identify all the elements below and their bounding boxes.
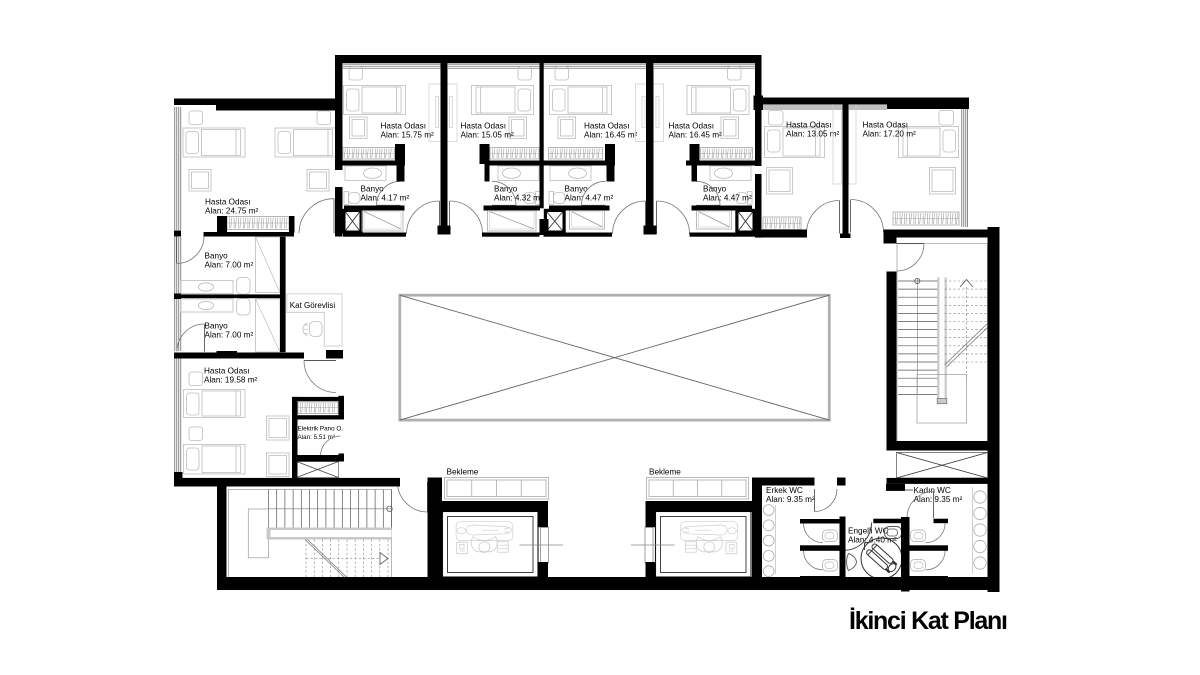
svg-text:Banyo: Banyo xyxy=(205,322,229,331)
svg-text:Alan: 15.05 m²: Alan: 15.05 m² xyxy=(461,131,515,140)
svg-text:Alan: 5.51 m²: Alan: 5.51 m² xyxy=(298,434,335,441)
svg-text:Alan: 4.47 m²: Alan: 4.47 m² xyxy=(703,194,752,203)
svg-text:Alan: 4.32 m²: Alan: 4.32 m² xyxy=(494,194,543,203)
svg-text:Hasta Odası: Hasta Odası xyxy=(381,122,427,131)
svg-text:Banyo: Banyo xyxy=(565,185,589,194)
svg-text:Hasta Odası: Hasta Odası xyxy=(584,122,630,131)
svg-text:Alan: 4.47 m²: Alan: 4.47 m² xyxy=(565,194,614,203)
svg-text:Banyo: Banyo xyxy=(205,252,229,261)
svg-text:Hasta Odası: Hasta Odası xyxy=(863,121,909,130)
svg-text:Bekleme: Bekleme xyxy=(649,468,681,477)
svg-text:Alan: 24.75 m²: Alan: 24.75 m² xyxy=(205,207,259,216)
svg-text:Alan: 4.17 m²: Alan: 4.17 m² xyxy=(361,194,410,203)
svg-text:Banyo: Banyo xyxy=(703,185,727,194)
svg-text:Hasta Odası: Hasta Odası xyxy=(786,121,832,130)
svg-text:Alan: 16.45 m²: Alan: 16.45 m² xyxy=(584,131,638,140)
svg-text:Hasta Odası: Hasta Odası xyxy=(205,198,251,207)
svg-text:Erkek WC: Erkek WC xyxy=(766,486,803,495)
svg-text:Alan: 19.58 m²: Alan: 19.58 m² xyxy=(204,376,258,385)
svg-text:Alan: 13.05 m²: Alan: 13.05 m² xyxy=(786,130,840,139)
svg-text:İkinci Kat Planı: İkinci Kat Planı xyxy=(849,607,1008,635)
svg-text:Alan: 9.35 m²: Alan: 9.35 m² xyxy=(914,495,963,504)
svg-text:Engelli WC: Engelli WC xyxy=(848,527,889,536)
svg-text:Alan: 9.35 m²: Alan: 9.35 m² xyxy=(766,495,815,504)
svg-text:Alan: 15.75 m²: Alan: 15.75 m² xyxy=(381,131,435,140)
svg-text:Alan: 16.45 m²: Alan: 16.45 m² xyxy=(669,131,723,140)
svg-text:Alan: 7.00 m²: Alan: 7.00 m² xyxy=(205,331,254,340)
svg-text:Kadın WC: Kadın WC xyxy=(914,486,951,495)
svg-text:Alan: 7.00 m²: Alan: 7.00 m² xyxy=(205,261,254,270)
svg-text:Hasta Odası: Hasta Odası xyxy=(461,122,507,131)
svg-text:Hasta Odası: Hasta Odası xyxy=(669,122,715,131)
svg-text:Alan: 17.20 m²: Alan: 17.20 m² xyxy=(863,130,917,139)
svg-text:Hasta Odası: Hasta Odası xyxy=(204,367,250,376)
svg-text:Bekleme: Bekleme xyxy=(447,468,479,477)
svg-text:Kat Görevlisi: Kat Görevlisi xyxy=(290,301,336,310)
svg-text:Elektrik Pano O.: Elektrik Pano O. xyxy=(298,426,344,433)
